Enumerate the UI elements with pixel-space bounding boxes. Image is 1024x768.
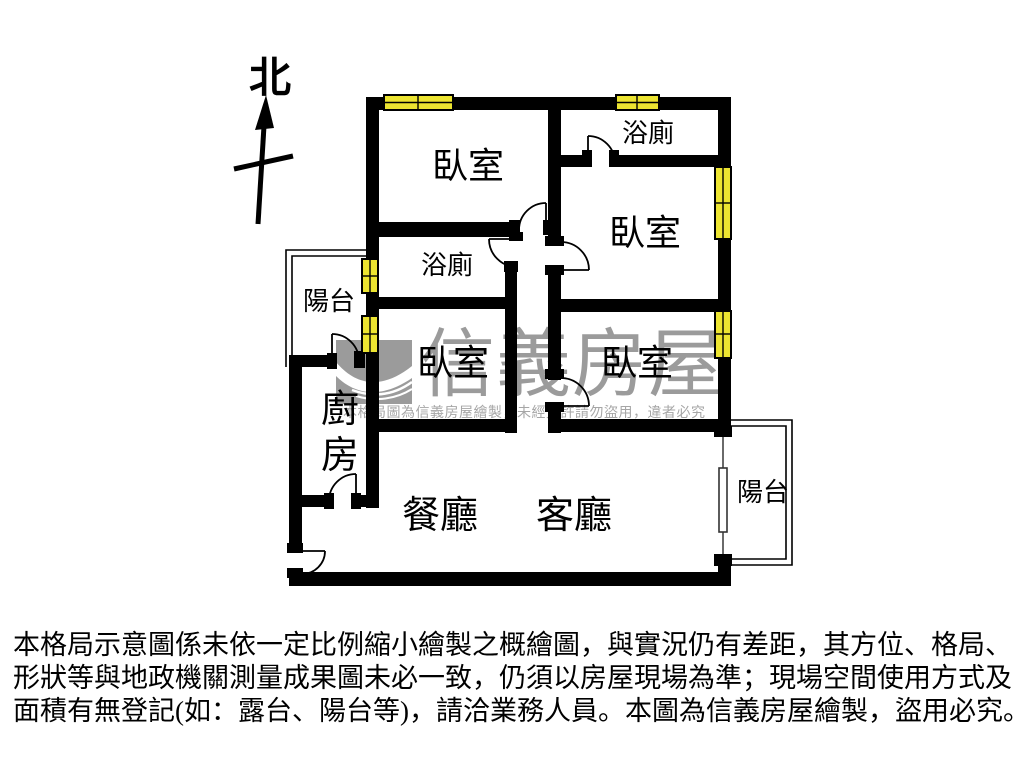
room-label-balcony-right: 陽台 (737, 480, 789, 506)
disclaimer-line-1: 本格局示意圖係未依一定比例縮小繪製之概繪圖，與實況仍有差距，其方位、格局、 (13, 629, 1013, 661)
north-label: 北 (249, 44, 291, 105)
room-label-living: 客廳 (536, 497, 612, 535)
floor-plan-page: 信義房屋 本格局圖為信義房屋繪製，未經允許請勿盜用，違者必究 (0, 0, 1024, 768)
room-label-bedroom-right-lower: 臥室 (601, 345, 673, 381)
room-label-kitchen: 廚房 (321, 388, 363, 479)
room-label-dining: 餐廳 (402, 497, 478, 535)
disclaimer-line-3: 面積有無登記(如：露台、陽台等)，請洽業務人員。本圖為信義房屋繪製，盜用必究。 (13, 695, 1013, 727)
room-label-bathroom-top: 浴廁 (622, 121, 674, 147)
disclaimer-line-2: 形狀等與地政機關測量成果圖未必一致，仍須以房屋現場為準；現場空間使用方式及 (13, 662, 1013, 694)
room-label-bedroom-right-upper: 臥室 (609, 215, 681, 251)
room-label-bathroom-middle: 浴廁 (421, 253, 473, 279)
room-label-bedroom-middle: 臥室 (417, 345, 489, 381)
room-label-bedroom-top-left: 臥室 (432, 148, 504, 184)
room-label-balcony-left: 陽台 (303, 289, 355, 315)
